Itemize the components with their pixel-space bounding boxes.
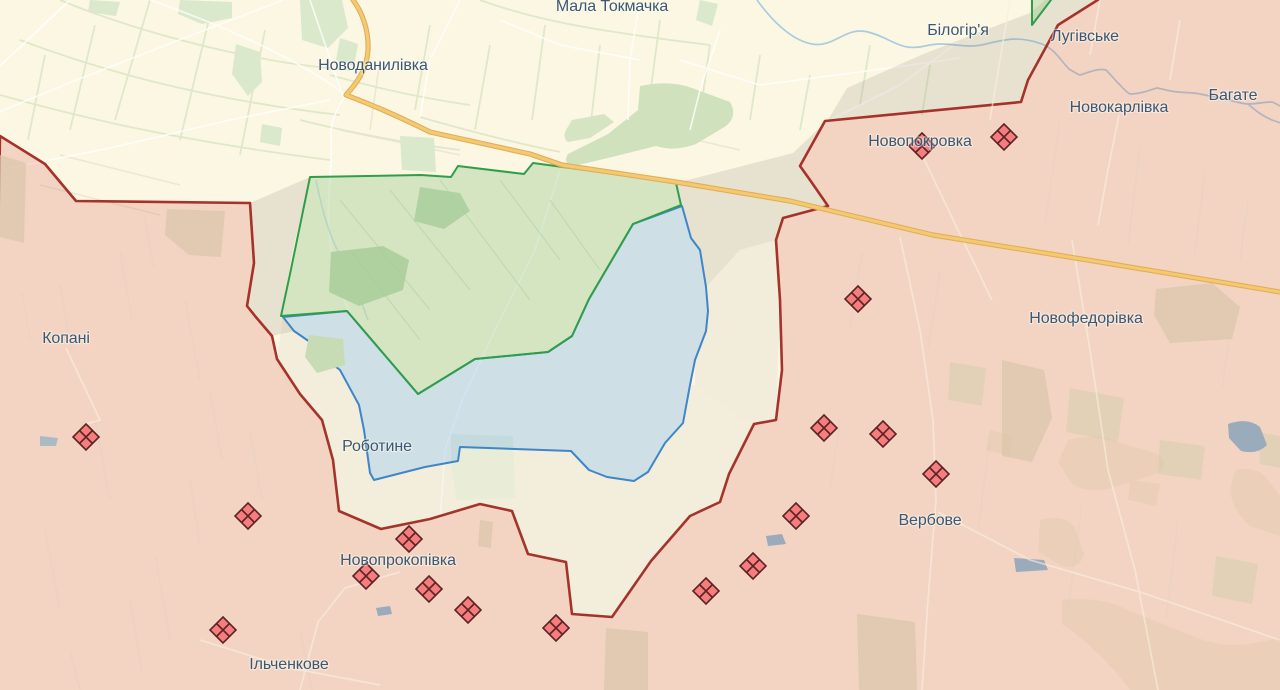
- svg-text:Мала Токмачка: Мала Токмачка: [556, 0, 669, 15]
- svg-text:Багате: Багате: [1209, 87, 1258, 104]
- svg-text:Новоданилівка: Новоданилівка: [318, 57, 428, 74]
- svg-text:Новопрокопівка: Новопрокопівка: [340, 552, 456, 569]
- svg-text:Новопокровка: Новопокровка: [868, 133, 972, 150]
- svg-text:Новофедорівка: Новофедорівка: [1029, 310, 1143, 327]
- svg-text:Новокарлівка: Новокарлівка: [1070, 99, 1169, 116]
- svg-text:Роботине: Роботине: [342, 438, 412, 455]
- svg-text:Лугівське: Лугівське: [1051, 28, 1119, 45]
- svg-text:Ільченкове: Ільченкове: [249, 656, 329, 673]
- svg-text:Копані: Копані: [42, 330, 90, 347]
- svg-text:Вербове: Вербове: [898, 512, 961, 529]
- svg-text:Білогір'я: Білогір'я: [927, 22, 989, 39]
